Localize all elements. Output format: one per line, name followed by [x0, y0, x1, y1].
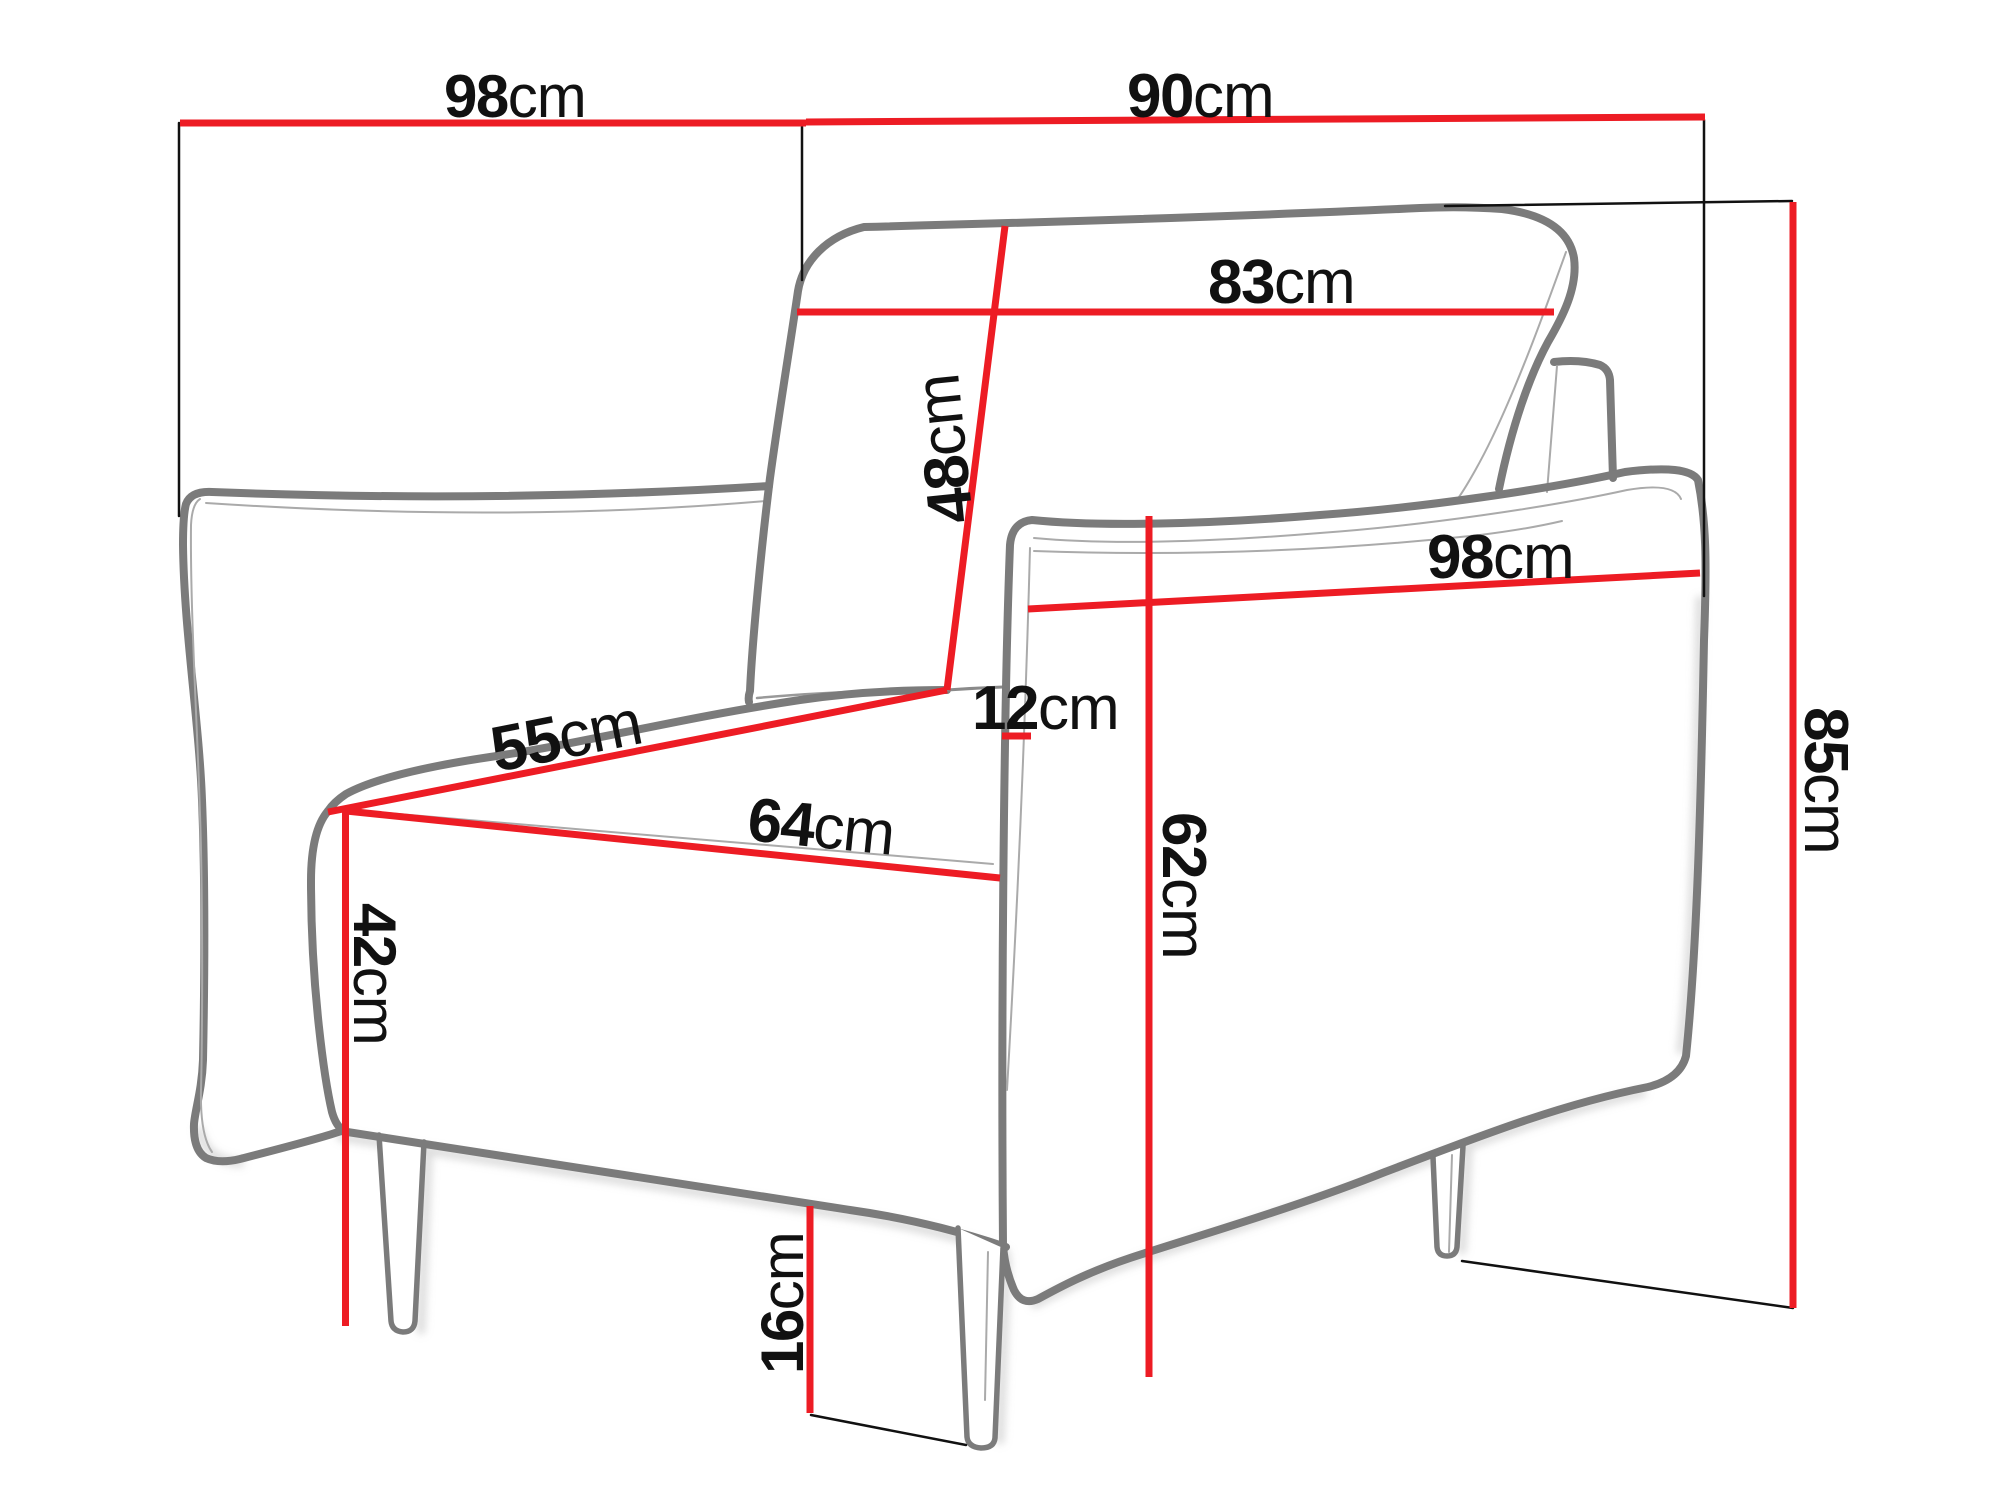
- svg-text:42cm: 42cm: [341, 903, 408, 1045]
- svg-text:64cm: 64cm: [745, 785, 898, 868]
- svg-text:48cm: 48cm: [902, 371, 987, 526]
- svg-text:98cm: 98cm: [1427, 523, 1574, 592]
- svg-text:83cm: 83cm: [1208, 248, 1355, 317]
- svg-text:16cm: 16cm: [749, 1232, 816, 1374]
- svg-text:90cm: 90cm: [1127, 62, 1274, 131]
- svg-text:62cm: 62cm: [1149, 812, 1218, 959]
- svg-text:85cm: 85cm: [1791, 707, 1860, 854]
- svg-text:12cm: 12cm: [972, 674, 1119, 743]
- svg-text:98cm: 98cm: [444, 63, 586, 130]
